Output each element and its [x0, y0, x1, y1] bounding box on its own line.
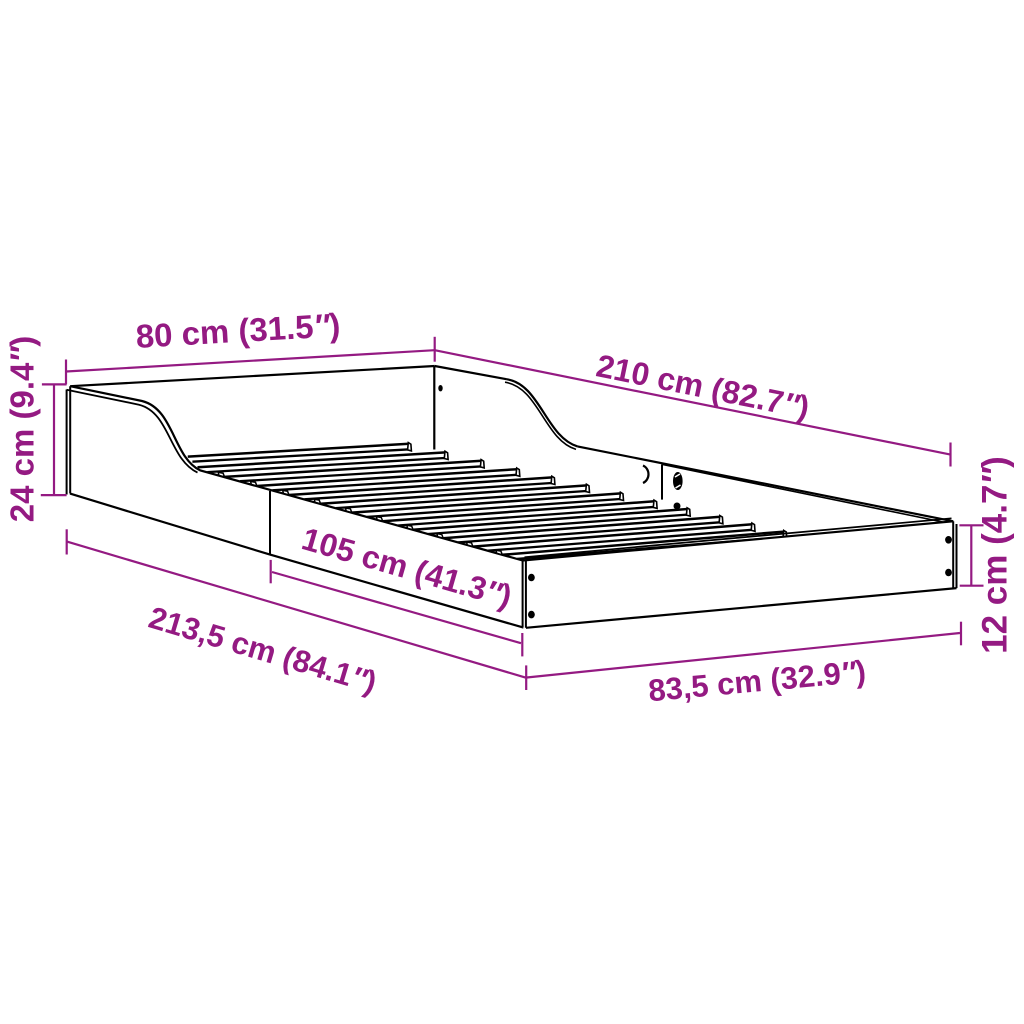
svg-text:24 cm (9.4″): 24 cm (9.4″) — [4, 336, 41, 522]
svg-text:12 cm (4.7″): 12 cm (4.7″) — [976, 456, 1015, 654]
